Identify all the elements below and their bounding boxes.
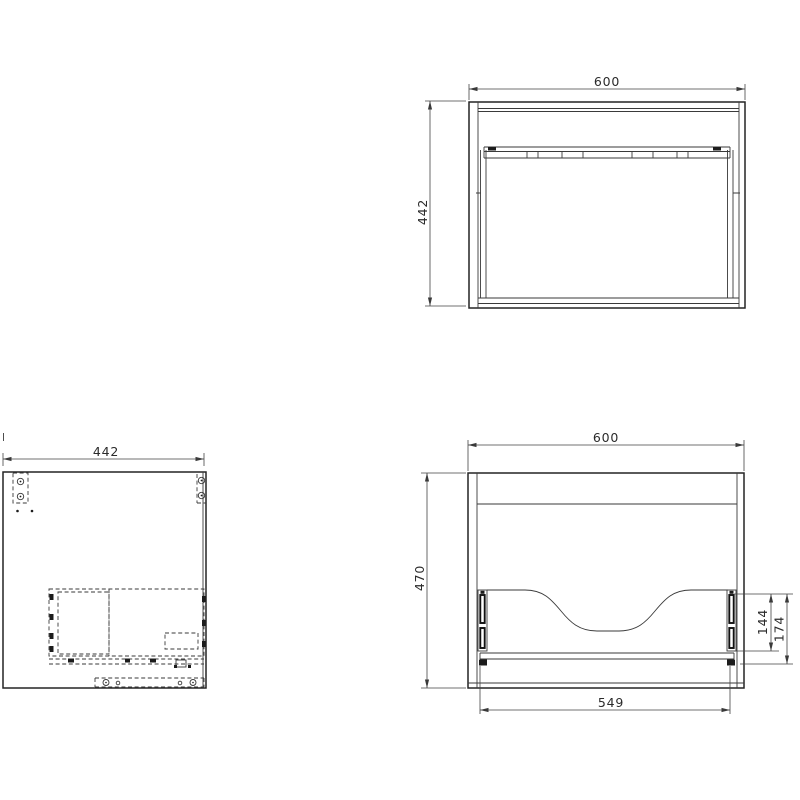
top-view — [469, 102, 745, 308]
slide-cap — [730, 591, 734, 594]
hidden-drawer-assembly — [49, 589, 206, 687]
hidden-drawer-front — [58, 592, 109, 654]
dowel-dot — [31, 510, 34, 513]
arrowhead-top — [425, 473, 429, 482]
arrowhead-bottom — [425, 680, 429, 689]
arrowhead-top — [769, 594, 773, 603]
screw-center — [201, 480, 203, 482]
top-view-panels — [478, 102, 739, 308]
dim-label-front-height: 470 — [412, 565, 427, 591]
arrowhead-right — [196, 457, 205, 461]
dim-label-drawer-opening: 549 — [598, 695, 624, 710]
slide-body — [727, 590, 736, 651]
arrowhead-left — [469, 87, 478, 91]
screw-center — [201, 495, 203, 497]
drawer-back-cutout — [487, 590, 728, 631]
arrowhead-bottom — [785, 656, 789, 665]
slide-runner — [480, 628, 484, 648]
drawer-slide-right — [727, 590, 736, 666]
clip — [116, 681, 120, 685]
slide-runner — [729, 595, 733, 623]
slide-runner — [480, 595, 484, 623]
stopper-screws — [174, 665, 191, 668]
hidden-slide-block — [165, 633, 198, 649]
dimension-front-width: 600 — [468, 430, 744, 471]
screw-center — [20, 481, 22, 483]
front-view-panels — [468, 473, 744, 688]
top-view-drawer-box — [476, 147, 740, 298]
dimension-front-height: 470 — [412, 473, 466, 688]
hidden-drawer-outline — [49, 589, 204, 656]
bottom-rail — [480, 653, 734, 659]
top-view-outline — [469, 102, 745, 308]
side-view — [3, 433, 206, 688]
arrowhead-right — [736, 443, 745, 447]
arrowhead-top — [785, 594, 789, 603]
arrowhead-left — [480, 708, 489, 712]
front-view-outline — [468, 473, 744, 688]
cabinet-technical-drawing: 600 442 — [0, 0, 800, 800]
drawer-slide-left — [478, 590, 487, 666]
dim-label-front-width: 600 — [593, 430, 619, 445]
slide-cap — [481, 591, 485, 594]
clip — [178, 681, 182, 685]
side-view-outline — [3, 472, 206, 688]
arrowhead-bottom — [428, 298, 432, 307]
dim-label-top-width: 600 — [594, 74, 620, 89]
front-view — [468, 473, 744, 688]
dimension-line — [421, 473, 466, 688]
top-view-rail-joint-ticks — [527, 152, 688, 159]
slide-runner — [729, 628, 733, 648]
mount-holes-left — [13, 473, 28, 503]
arrowhead-left — [3, 457, 12, 461]
dowel-dot — [16, 510, 19, 513]
arrowhead-right — [737, 87, 746, 91]
dimension-side-depth: 442 — [3, 444, 204, 466]
roller-center — [105, 682, 107, 684]
slide-foot — [727, 660, 735, 666]
arrowhead-bottom — [769, 643, 773, 652]
screw-center — [20, 496, 22, 498]
drawing-sheet: 600 442 — [0, 0, 800, 800]
roller-center — [192, 682, 194, 684]
top-view-slide-end-caps — [488, 147, 721, 151]
dimension-line — [425, 101, 466, 306]
slide-foot — [479, 660, 487, 666]
mount-holes-right — [197, 474, 206, 503]
dimension-top-width: 600 — [469, 74, 745, 100]
arrowhead-left — [468, 443, 477, 447]
dim-label-side-depth: 442 — [93, 444, 119, 459]
arrowhead-right — [722, 708, 731, 712]
slide-fixing-marks — [50, 594, 206, 663]
dimension-top-depth: 442 — [415, 101, 466, 306]
slide-stopper — [176, 660, 186, 667]
dimension-drawer-opening: 549 — [480, 666, 730, 714]
dim-label-top-depth: 442 — [415, 199, 430, 225]
arrowhead-top — [428, 101, 432, 110]
dim-label-slide-height: 144 — [755, 609, 770, 635]
dim-label-slide-to-rail: 174 — [772, 616, 787, 642]
hidden-bracket-left — [13, 473, 28, 503]
hidden-bottom-strip — [95, 678, 204, 687]
